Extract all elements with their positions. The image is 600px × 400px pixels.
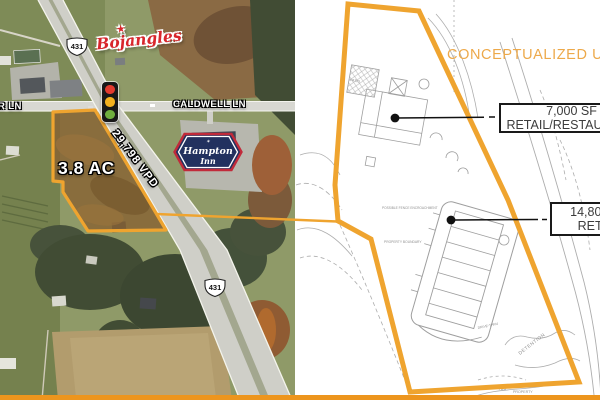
traffic-light-yellow	[105, 97, 115, 107]
callout-use-label: RETAIL/RESTAURANT	[506, 118, 600, 132]
callout-size-label: 7,000 SF	[546, 104, 597, 118]
flyer-canvas: PATIO DRIVE-THRU DETENTION 755 PROPERTY …	[0, 0, 600, 400]
caldwell-ln-street-label: CALDWELL LN	[173, 99, 246, 110]
hampton-inn-badge: ✶ Hampton Inn	[175, 134, 242, 170]
sketch-label-property: PROPERTY	[513, 390, 533, 394]
traffic-light-green	[105, 110, 115, 120]
conceptualized-use-title: CONCEPTUALIZED USE	[447, 47, 600, 63]
svg-text:431: 431	[209, 283, 222, 292]
callout-box-7000sf: 7,000 SF RETAIL/RESTAURANT	[499, 103, 600, 133]
callout-box-14800sf: 14,800 SF RETAIL	[550, 202, 600, 236]
hampton-inn-label-line2: Inn	[199, 156, 216, 166]
callout-dot-upper	[391, 114, 400, 123]
sketch-label-boundary-note: PROPERTY BOUNDARY	[384, 240, 422, 244]
callout-dot-lower	[447, 216, 456, 225]
bojangles-star-icon: ★	[116, 24, 125, 35]
svg-text:431: 431	[71, 42, 84, 51]
callout-size-label: 14,800 SF	[570, 205, 600, 219]
bottom-accent-bar	[0, 395, 600, 400]
parcel-acreage-label: 3.8 AC	[58, 158, 115, 179]
traffic-light-red	[105, 85, 115, 95]
r-ln-street-label: R LN	[0, 101, 22, 112]
callout-use-label: RETAIL	[578, 219, 600, 233]
sketch-label-fence-note: POSSIBLE FENCE ENCROACHMENT	[382, 206, 438, 210]
caldwell-lane-road	[0, 101, 295, 112]
traffic-light-icon	[102, 82, 118, 122]
aerial-photo	[0, 0, 295, 400]
